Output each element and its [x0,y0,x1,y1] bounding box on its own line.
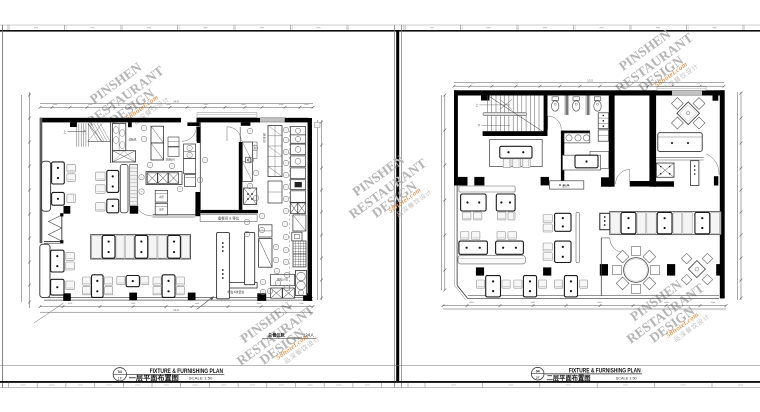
svg-text:SCALE 1:50: SCALE 1:50 [616,377,637,381]
svg-text:洗碗机: 洗碗机 [129,137,137,141]
svg-text:冰柜: 冰柜 [159,195,165,199]
svg-text:上菜: 上菜 [253,143,256,150]
svg-text:04: 04 [536,369,540,373]
svg-text:2F: 2F [536,376,540,380]
svg-text:操作台: 操作台 [262,132,266,144]
svg-text:二层平面布置图: 二层平面布置图 [547,373,591,382]
svg-text:冰柜: 冰柜 [159,208,165,212]
svg-text:1F: 1F [118,377,122,381]
svg-text:备餐间 & 等位: 备餐间 & 等位 [218,216,240,221]
svg-text:一层平面布置图: 一层平面布置图 [129,373,179,382]
svg-text:服务台: 服务台 [562,184,570,188]
svg-text:SCALE 1:50: SCALE 1:50 [189,376,213,380]
svg-text:吧台&收银台: 吧台&收银台 [227,289,244,294]
svg-text:14.8: 14.8 [173,308,179,312]
svg-text:04: 04 [118,370,122,374]
svg-text:总餐位数: 总餐位数 [268,331,286,338]
svg-text:FIXTURE & FURNISHING PLAN: FIXTURE & FURNISHING PLAN [150,368,224,375]
svg-text:下: 下 [477,124,480,128]
svg-text:14.8: 14.8 [173,100,179,104]
svg-text:124人: 124人 [303,332,315,337]
svg-text:13.5: 13.5 [587,79,593,83]
svg-text:洗碗间: 洗碗间 [165,156,174,161]
svg-text:上: 上 [475,102,478,107]
svg-text:明档小吃: 明档小吃 [277,278,288,282]
